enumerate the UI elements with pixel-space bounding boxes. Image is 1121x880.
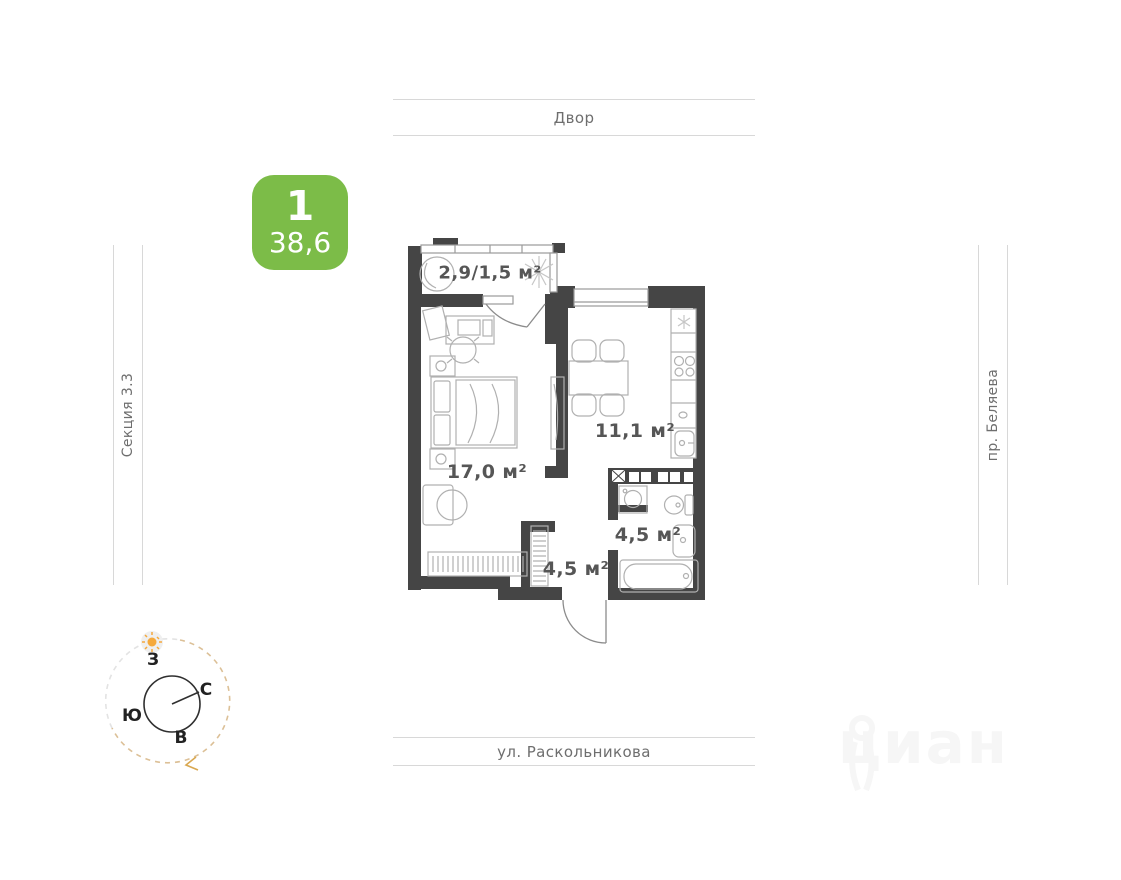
- watermark: циан: [838, 714, 1009, 772]
- compass-north-label: С: [200, 680, 212, 700]
- bathtub: [620, 560, 698, 592]
- wardrobe-bottom: [428, 552, 527, 576]
- entry-door-arc: [563, 600, 606, 643]
- area-label-hallway: 4,5 м²: [543, 558, 610, 580]
- area-label-living-room: 17,0 м²: [447, 461, 527, 483]
- area-label-bathroom: 4,5 м²: [615, 524, 682, 546]
- armchair: [423, 485, 467, 525]
- compass-south-label: Ю: [122, 706, 142, 726]
- compass-east-label: В: [175, 728, 188, 748]
- desk-chair: [447, 337, 479, 363]
- compass: [106, 631, 230, 770]
- floorplan-page: Двор ул. Раскольникова Секция 3.3 пр. Бе…: [0, 0, 1121, 880]
- area-label-kitchen: 11,1 м²: [595, 420, 675, 442]
- watermark-text: циан: [838, 714, 1009, 772]
- dining-table: [569, 340, 628, 416]
- balcony-door-leaf: [527, 304, 545, 327]
- bed: [431, 377, 517, 448]
- compass-west-label: З: [147, 650, 159, 670]
- shaft-wall: [608, 468, 698, 484]
- area-label-balcony: 2,9/1,5 м²: [438, 263, 541, 284]
- toilet: [665, 495, 694, 515]
